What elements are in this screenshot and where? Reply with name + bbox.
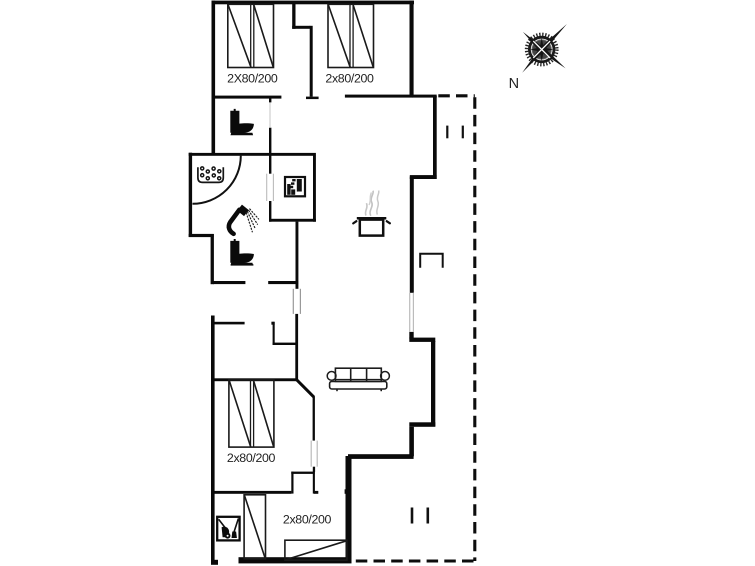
svg-text:2X80/200: 2X80/200 — [227, 71, 278, 85]
svg-text:N: N — [509, 76, 519, 92]
svg-text:2x80/200: 2x80/200 — [325, 71, 374, 85]
svg-text:2x80/200: 2x80/200 — [227, 451, 276, 465]
svg-text:2x80/200: 2x80/200 — [283, 513, 332, 527]
